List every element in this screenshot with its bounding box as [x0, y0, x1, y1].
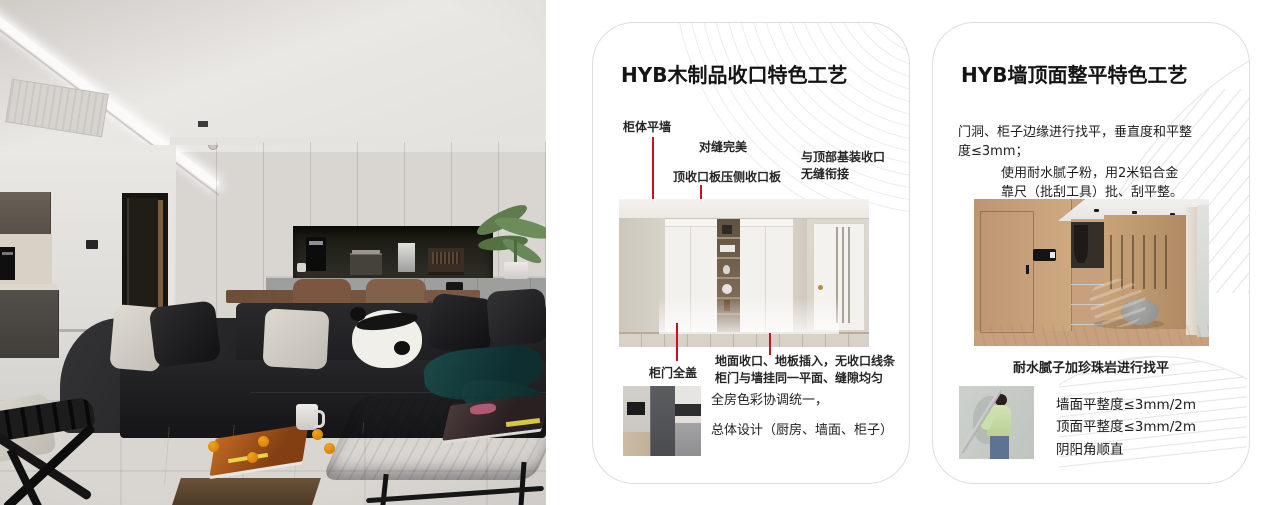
card1-title: HYB木制品收口特色工艺 [621, 59, 847, 88]
thermostat-switch [1050, 252, 1055, 258]
callout-top-board: 顶收口板压侧收口板 [673, 169, 781, 186]
callout-top-join-line1: 与顶部基装收口 [801, 149, 885, 166]
door-slat [842, 227, 844, 323]
door-knob [818, 285, 823, 290]
thumb-kitchen-lower [675, 423, 701, 456]
frosted-glass-wall [1197, 205, 1209, 337]
white-box-decor [720, 245, 735, 252]
callout-floor-line1: 地面收口、地板插入，无收口线条 [715, 353, 895, 370]
paragraph-leveling-line1: 门洞、柜子边缘进行找平，垂直度和平整 [958, 123, 1192, 142]
downlight [1094, 209, 1099, 212]
door-slat [848, 227, 850, 323]
shelf [717, 277, 740, 279]
bullet-wall-flatness: 墙面平整度≤3mm/2m [1056, 393, 1196, 413]
callout-line [676, 323, 678, 361]
note-color-harmony: 全房色彩协调统一， [711, 389, 828, 408]
thumb-kitchen-counter [675, 416, 701, 423]
callout-cabinet-flush: 柜体平墙 [623, 119, 671, 136]
promo-page: HYB木制品收口特色工艺 柜体平墙 对缝完美 顶收口板压侧收口板 与顶部基装收口… [0, 0, 1280, 505]
bullet-corners-straight: 阴阳角顺直 [1056, 438, 1124, 458]
open-door-jamb [1186, 207, 1197, 335]
callout-seam-perfect: 对缝完美 [699, 139, 747, 156]
render-wood-floor [619, 334, 869, 347]
thumb-tv [627, 402, 645, 415]
paragraph-leveling-line2: 度≤3mm； [958, 142, 1192, 161]
kitchen-photo-thumbnail [623, 386, 701, 456]
living-room-photo [0, 0, 546, 505]
downlight [1132, 211, 1137, 214]
callout-door-full-cover: 柜门全盖 [649, 365, 697, 382]
card-wood-finishing: HYB木制品收口特色工艺 柜体平墙 对缝完美 顶收口板压侧收口板 与顶部基装收口… [592, 22, 910, 484]
round-decor [722, 284, 732, 294]
callout-top-join-line2: 无缝衔接 [801, 166, 885, 183]
note-overall-design: 总体设计（厨房、墙面、柜子） [711, 419, 893, 438]
card2-title: HYB墙顶面整平特色工艺 [961, 59, 1187, 88]
thumb-wood-floor [623, 432, 653, 456]
thumb-kitchen-appliances [675, 404, 701, 416]
paragraph-putty: 使用耐水腻子粉，用2米铝合金 靠尺（批刮工具）批、刮平整。 [1001, 164, 1183, 202]
worker-photo-thumbnail [959, 386, 1034, 459]
gray-blanket [1090, 279, 1146, 327]
vase-decor [723, 265, 730, 274]
callout-line [769, 333, 771, 355]
shelf [717, 257, 740, 259]
photo-frame-decor [722, 225, 732, 234]
photo-vignette [0, 0, 546, 505]
light-reflection [659, 297, 839, 334]
callout-top-join: 与顶部基装收口 无缝衔接 [801, 149, 885, 183]
caption-putty-perlite: 耐水腻子加珍珠岩进行找平 [933, 357, 1249, 376]
worker-jeans [990, 436, 1009, 459]
wardrobe-render-image [619, 199, 869, 347]
hallway-photo [974, 199, 1209, 346]
paragraph-leveling: 门洞、柜子边缘进行找平，垂直度和平整 度≤3mm； [958, 123, 1192, 161]
hanging-clothes [1074, 225, 1088, 263]
render-ceiling [619, 199, 869, 219]
callout-floor-line2: 柜门与墙挂同一平面、缝隙均匀 [715, 370, 895, 387]
callout-floor-join: 地面收口、地板插入，无收口线条 柜门与墙挂同一平面、缝隙均匀 [715, 353, 895, 387]
paragraph-putty-line1: 使用耐水腻子粉，用2米铝合金 [1001, 164, 1183, 183]
thumb-kitchen-upper [675, 386, 701, 404]
herringbone-floor [974, 325, 1209, 346]
card-wall-leveling: HYB墙顶面整平特色工艺 门洞、柜子边缘进行找平，垂直度和平整 度≤3mm； 使… [932, 22, 1250, 484]
shelf [717, 237, 740, 239]
thumb-gray-cabinet [650, 386, 676, 456]
bullet-ceiling-flatness: 顶面平整度≤3mm/2m [1056, 415, 1196, 435]
door-handle [1026, 265, 1029, 274]
